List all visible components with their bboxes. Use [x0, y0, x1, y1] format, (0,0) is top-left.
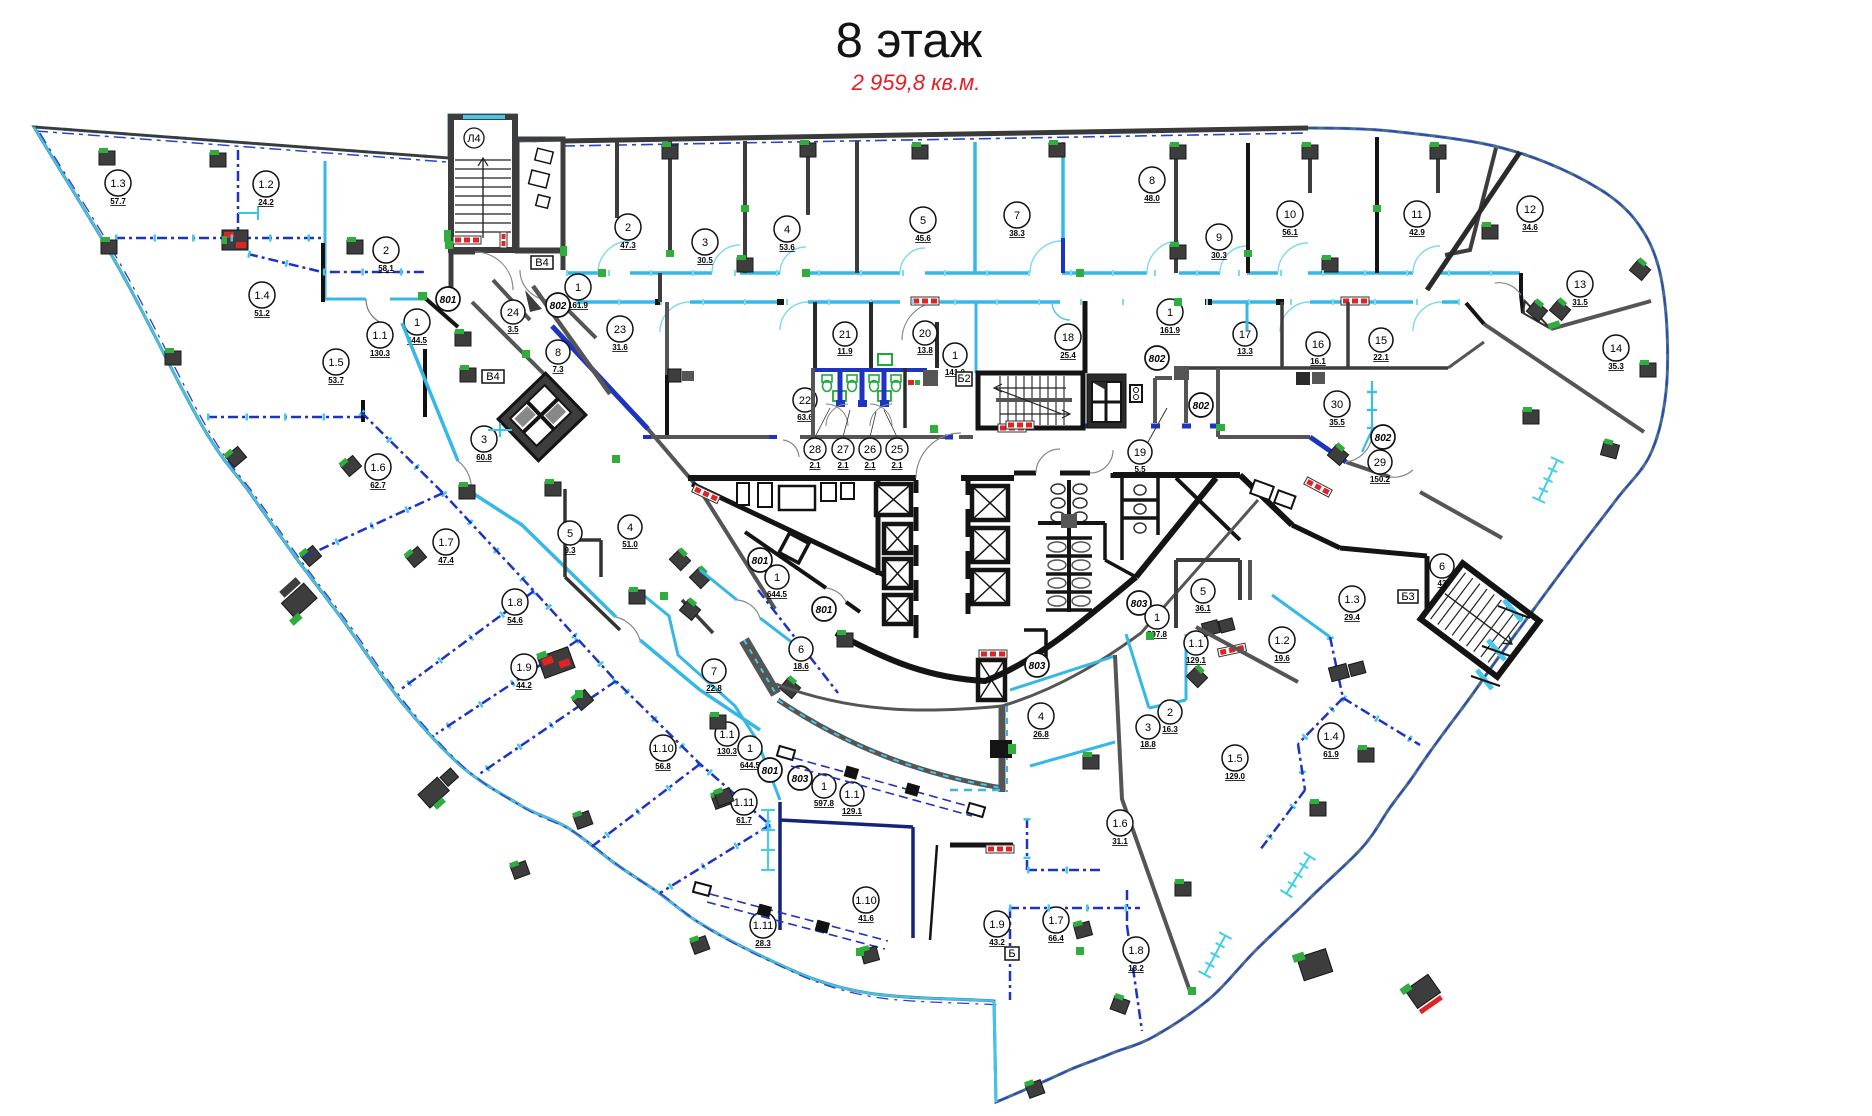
svg-text:1.2: 1.2 [258, 179, 273, 191]
svg-text:7: 7 [1014, 210, 1020, 222]
svg-text:22: 22 [799, 395, 811, 407]
svg-text:2.1: 2.1 [864, 461, 876, 470]
svg-text:4: 4 [1038, 711, 1044, 723]
svg-text:56.1: 56.1 [1282, 228, 1298, 237]
svg-text:3: 3 [481, 434, 487, 446]
svg-text:41.6: 41.6 [858, 914, 874, 923]
svg-text:25: 25 [891, 444, 903, 456]
svg-text:43: 43 [1438, 579, 1447, 588]
svg-text:Б2: Б2 [957, 373, 970, 385]
svg-text:22.1: 22.1 [1373, 353, 1389, 362]
svg-text:13.3: 13.3 [1237, 347, 1253, 356]
svg-text:801: 801 [440, 295, 457, 306]
svg-text:35.5: 35.5 [1329, 418, 1345, 427]
svg-text:16: 16 [1312, 339, 1324, 351]
svg-text:48.0: 48.0 [1144, 194, 1160, 203]
svg-text:1.11: 1.11 [753, 920, 774, 932]
svg-text:1.5: 1.5 [1227, 753, 1242, 765]
svg-text:1.1: 1.1 [372, 330, 387, 342]
svg-text:18.2: 18.2 [1128, 964, 1144, 973]
svg-text:30.5: 30.5 [697, 256, 713, 265]
svg-text:11: 11 [1411, 209, 1422, 221]
svg-text:10: 10 [1284, 209, 1296, 221]
svg-text:1.6: 1.6 [1112, 818, 1127, 830]
svg-text:801: 801 [762, 766, 779, 777]
svg-text:130.3: 130.3 [370, 349, 391, 358]
svg-text:51.2: 51.2 [254, 309, 270, 318]
svg-text:31.6: 31.6 [612, 343, 628, 352]
svg-text:В4: В4 [486, 371, 499, 383]
svg-text:129.1: 129.1 [842, 807, 863, 816]
svg-text:1.10: 1.10 [855, 895, 876, 907]
svg-text:2 959,8 кв.м.: 2 959,8 кв.м. [851, 70, 981, 95]
svg-text:1.5: 1.5 [328, 357, 343, 369]
svg-text:31.5: 31.5 [1572, 298, 1588, 307]
svg-text:1.11: 1.11 [734, 797, 755, 809]
svg-text:34.6: 34.6 [1522, 223, 1538, 232]
svg-text:1.4: 1.4 [1323, 731, 1338, 743]
svg-text:2.1: 2.1 [891, 461, 903, 470]
svg-text:8 этаж: 8 этаж [836, 14, 983, 68]
svg-text:1.3: 1.3 [110, 178, 125, 190]
svg-text:2.1: 2.1 [837, 461, 849, 470]
svg-text:61.9: 61.9 [1323, 750, 1339, 759]
svg-text:13: 13 [1574, 279, 1586, 291]
svg-text:2: 2 [383, 245, 389, 257]
svg-text:18: 18 [1062, 332, 1074, 344]
svg-text:803: 803 [1131, 599, 1148, 610]
svg-text:5: 5 [920, 215, 926, 227]
svg-text:Б: Б [1008, 948, 1015, 960]
svg-text:24: 24 [507, 307, 519, 319]
svg-text:27: 27 [837, 444, 849, 456]
svg-text:18.6: 18.6 [793, 662, 809, 671]
svg-text:3: 3 [702, 237, 708, 249]
svg-text:802: 802 [550, 301, 567, 312]
svg-text:1.3: 1.3 [1344, 594, 1359, 606]
svg-text:45.6: 45.6 [915, 234, 931, 243]
svg-text:30: 30 [1331, 399, 1343, 411]
svg-text:51.0: 51.0 [622, 540, 638, 549]
svg-text:В4: В4 [535, 257, 548, 269]
svg-text:36.1: 36.1 [1195, 604, 1211, 613]
svg-text:26: 26 [864, 444, 876, 456]
svg-text:16.1: 16.1 [1310, 357, 1326, 366]
svg-text:54.6: 54.6 [507, 616, 523, 625]
svg-text:1: 1 [747, 743, 753, 755]
svg-text:802: 802 [1193, 401, 1210, 412]
svg-text:62.7: 62.7 [370, 481, 386, 490]
svg-text:47.3: 47.3 [620, 241, 636, 250]
svg-text:29: 29 [1374, 457, 1386, 469]
svg-text:1.7: 1.7 [438, 537, 453, 549]
svg-text:801: 801 [752, 556, 769, 567]
svg-text:130.3: 130.3 [717, 747, 738, 756]
svg-text:1.2: 1.2 [1274, 635, 1289, 647]
svg-text:43.2: 43.2 [989, 938, 1005, 947]
svg-text:20: 20 [919, 328, 931, 340]
svg-text:13.8: 13.8 [917, 346, 933, 355]
svg-text:6: 6 [1439, 561, 1445, 573]
svg-text:53.7: 53.7 [328, 376, 344, 385]
svg-text:Б3: Б3 [1401, 591, 1414, 603]
svg-text:11.9: 11.9 [837, 347, 853, 356]
svg-text:1: 1 [774, 572, 780, 584]
svg-text:161.9: 161.9 [568, 301, 589, 310]
svg-text:9.3: 9.3 [564, 546, 576, 555]
svg-text:802: 802 [1149, 354, 1166, 365]
svg-text:1: 1 [821, 781, 827, 793]
svg-text:16.3: 16.3 [1162, 725, 1178, 734]
svg-text:2.1: 2.1 [809, 461, 821, 470]
svg-text:1: 1 [575, 282, 581, 294]
svg-text:8: 8 [555, 347, 561, 359]
svg-text:3: 3 [1145, 722, 1151, 734]
svg-text:129.0: 129.0 [1225, 772, 1246, 781]
svg-text:29.4: 29.4 [1344, 613, 1360, 622]
svg-text:19: 19 [1134, 447, 1146, 459]
svg-text:8: 8 [1149, 175, 1155, 187]
svg-text:15: 15 [1375, 335, 1387, 347]
svg-text:57.7: 57.7 [110, 197, 126, 206]
svg-text:58.1: 58.1 [378, 264, 394, 273]
svg-text:26.8: 26.8 [1033, 730, 1049, 739]
svg-text:1: 1 [1154, 612, 1160, 624]
svg-text:597.8: 597.8 [814, 799, 835, 808]
svg-text:4: 4 [784, 224, 790, 236]
svg-text:60.8: 60.8 [476, 453, 492, 462]
svg-text:66.4: 66.4 [1048, 934, 1064, 943]
svg-text:5: 5 [1200, 586, 1206, 598]
svg-text:Л4: Л4 [467, 133, 480, 145]
svg-text:9: 9 [1216, 232, 1222, 244]
svg-text:1.7: 1.7 [1048, 915, 1063, 927]
svg-text:2: 2 [625, 222, 631, 234]
svg-text:19.6: 19.6 [1274, 654, 1290, 663]
svg-text:644.5: 644.5 [767, 590, 788, 599]
svg-text:23: 23 [614, 324, 626, 336]
svg-text:1: 1 [952, 350, 958, 362]
svg-text:1.8: 1.8 [1128, 945, 1143, 957]
svg-text:129.1: 129.1 [1186, 656, 1207, 665]
svg-text:1.8: 1.8 [507, 597, 522, 609]
svg-text:12: 12 [1524, 204, 1536, 216]
svg-text:1.6: 1.6 [370, 462, 385, 474]
svg-text:35.3: 35.3 [1608, 362, 1624, 371]
svg-text:1.1: 1.1 [719, 729, 734, 741]
svg-text:42.9: 42.9 [1409, 228, 1425, 237]
svg-text:6: 6 [798, 644, 804, 656]
svg-text:1: 1 [1167, 307, 1173, 319]
svg-text:25.4: 25.4 [1060, 351, 1076, 360]
svg-text:61.7: 61.7 [736, 816, 752, 825]
svg-text:161.9: 161.9 [1160, 326, 1181, 335]
svg-text:53.6: 53.6 [779, 243, 795, 252]
svg-text:801: 801 [816, 605, 833, 616]
svg-text:150.2: 150.2 [1370, 475, 1391, 484]
svg-text:2: 2 [1167, 707, 1173, 719]
svg-text:1.9: 1.9 [989, 919, 1004, 931]
svg-text:28.3: 28.3 [755, 939, 771, 948]
svg-text:7.3: 7.3 [552, 365, 564, 374]
svg-text:1.4: 1.4 [254, 290, 269, 302]
svg-text:63.6: 63.6 [797, 413, 813, 422]
svg-text:4: 4 [627, 522, 633, 534]
svg-text:5: 5 [567, 528, 573, 540]
svg-text:3.5: 3.5 [507, 325, 519, 334]
svg-text:7: 7 [711, 666, 717, 678]
svg-text:803: 803 [792, 774, 809, 785]
svg-text:1.1: 1.1 [844, 789, 859, 801]
svg-text:47.4: 47.4 [438, 556, 454, 565]
svg-text:38.3: 38.3 [1009, 229, 1025, 238]
svg-text:44.2: 44.2 [516, 681, 532, 690]
svg-text:21: 21 [839, 329, 851, 341]
svg-text:1.9: 1.9 [516, 662, 531, 674]
svg-text:56.8: 56.8 [655, 762, 671, 771]
svg-text:803: 803 [1029, 661, 1046, 672]
svg-text:24.2: 24.2 [258, 198, 274, 207]
svg-text:17: 17 [1239, 329, 1251, 341]
svg-text:18.8: 18.8 [1140, 740, 1156, 749]
svg-text:802: 802 [1375, 433, 1392, 444]
svg-text:30.3: 30.3 [1211, 251, 1227, 260]
svg-text:22.8: 22.8 [706, 684, 722, 693]
svg-text:1.10: 1.10 [652, 743, 673, 755]
svg-text:31.1: 31.1 [1112, 837, 1128, 846]
svg-text:14: 14 [1610, 343, 1622, 355]
svg-text:1: 1 [414, 317, 420, 329]
svg-text:1.1: 1.1 [1188, 638, 1203, 650]
svg-text:28: 28 [809, 444, 821, 456]
